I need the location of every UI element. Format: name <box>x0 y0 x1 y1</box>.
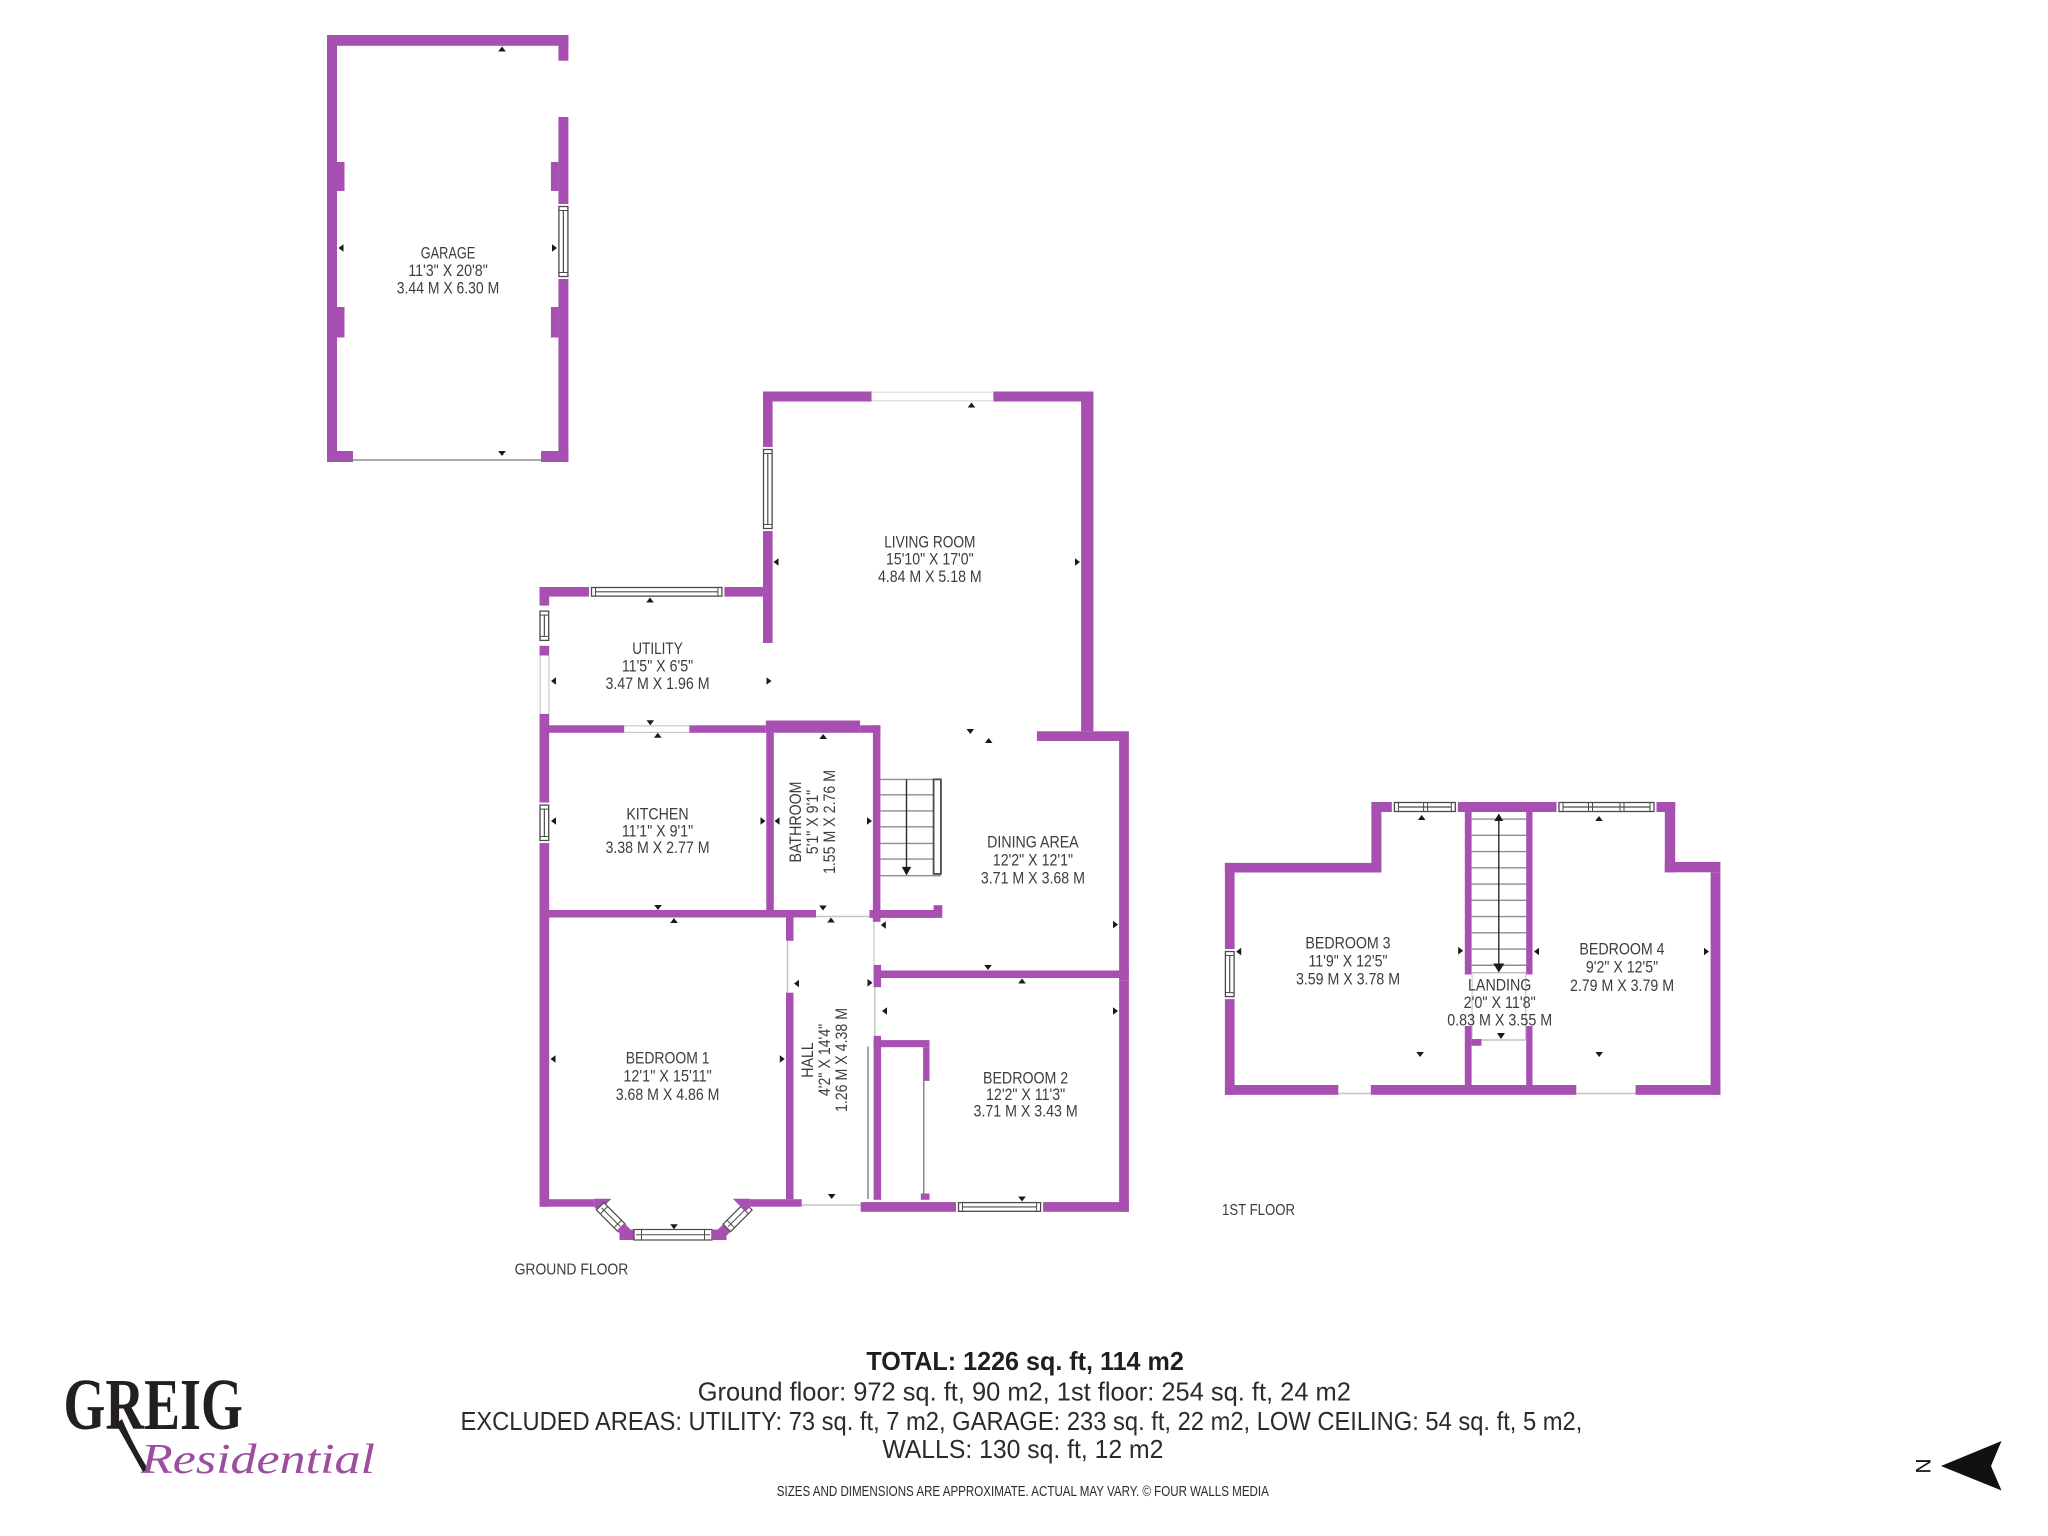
svg-text:11'1" X 9'1": 11'1" X 9'1" <box>622 822 693 840</box>
svg-text:EXCLUDED AREAS: UTILITY: 73 sq: EXCLUDED AREAS: UTILITY: 73 sq. ft, 7 m2… <box>461 1408 1583 1436</box>
svg-text:N: N <box>1913 1458 1936 1473</box>
svg-text:3.59 M X 3.78 M: 3.59 M X 3.78 M <box>1296 971 1400 989</box>
svg-text:SIZES AND DIMENSIONS ARE APPRO: SIZES AND DIMENSIONS ARE APPROXIMATE. AC… <box>777 1483 1270 1500</box>
svg-text:5'1" X 9'1": 5'1" X 9'1" <box>804 790 822 855</box>
svg-text:LIVING ROOM: LIVING ROOM <box>884 533 975 551</box>
svg-text:3.47 M X 1.96 M: 3.47 M X 1.96 M <box>605 675 709 693</box>
svg-text:1.26 M X 4.38 M: 1.26 M X 4.38 M <box>833 1008 851 1112</box>
svg-text:GREIG: GREIG <box>64 1364 243 1445</box>
svg-text:3.44 M X 6.30 M: 3.44 M X 6.30 M <box>397 279 499 297</box>
svg-text:GROUND FLOOR: GROUND FLOOR <box>515 1262 629 1279</box>
svg-text:BATHROOM: BATHROOM <box>787 782 805 863</box>
svg-text:3.68 M X 4.86 M: 3.68 M X 4.86 M <box>616 1086 720 1104</box>
svg-text:1ST FLOOR: 1ST FLOOR <box>1222 1202 1295 1219</box>
svg-text:9'2" X 12'5": 9'2" X 12'5" <box>1586 959 1658 977</box>
svg-text:15'10" X 17'0": 15'10" X 17'0" <box>886 551 974 569</box>
svg-text:4'2" X 14'4": 4'2" X 14'4" <box>816 1024 834 1096</box>
svg-text:BEDROOM 4: BEDROOM 4 <box>1579 940 1664 958</box>
svg-text:3.71 M X 3.43 M: 3.71 M X 3.43 M <box>974 1102 1078 1120</box>
svg-text:12'2" X 12'1": 12'2" X 12'1" <box>993 851 1073 869</box>
svg-text:1.55 M X 2.76 M: 1.55 M X 2.76 M <box>821 770 839 874</box>
svg-text:UTILITY: UTILITY <box>632 640 683 658</box>
svg-text:3.38 M X 2.77 M: 3.38 M X 2.77 M <box>605 839 709 857</box>
svg-text:3.71 M X 3.68 M: 3.71 M X 3.68 M <box>981 870 1085 888</box>
svg-text:LANDING: LANDING <box>1468 977 1531 995</box>
svg-text:KITCHEN: KITCHEN <box>626 805 688 823</box>
svg-text:BEDROOM 1: BEDROOM 1 <box>626 1050 710 1068</box>
svg-text:12'1" X 15'11": 12'1" X 15'11" <box>623 1068 712 1086</box>
svg-text:2'0" X 11'8": 2'0" X 11'8" <box>1464 994 1536 1012</box>
svg-text:BEDROOM 2: BEDROOM 2 <box>983 1069 1068 1087</box>
svg-text:DINING AREA: DINING AREA <box>987 833 1079 851</box>
svg-text:2.79 M X 3.79 M: 2.79 M X 3.79 M <box>1570 977 1674 995</box>
svg-text:BEDROOM 3: BEDROOM 3 <box>1305 935 1390 953</box>
svg-text:WALLS: 130 sq. ft, 12 m2: WALLS: 130 sq. ft, 12 m2 <box>882 1436 1163 1464</box>
svg-text:Ground floor: 972 sq. ft, 90 m: Ground floor: 972 sq. ft, 90 m2, 1st flo… <box>698 1379 1351 1407</box>
svg-text:11'3" X 20'8": 11'3" X 20'8" <box>408 262 488 280</box>
svg-text:4.84 M X 5.18 M: 4.84 M X 5.18 M <box>878 568 982 586</box>
svg-text:0.83 M X 3.55 M: 0.83 M X 3.55 M <box>1447 1012 1552 1030</box>
svg-text:HALL: HALL <box>799 1042 817 1078</box>
svg-text:TOTAL: 1226 sq. ft, 114 m2: TOTAL: 1226 sq. ft, 114 m2 <box>866 1348 1184 1376</box>
svg-text:11'9" X 12'5": 11'9" X 12'5" <box>1308 953 1387 971</box>
svg-text:11'5" X 6'5": 11'5" X 6'5" <box>622 658 693 676</box>
svg-text:Residential: Residential <box>140 1437 375 1483</box>
svg-text:12'2" X 11'3": 12'2" X 11'3" <box>986 1086 1065 1104</box>
svg-text:GARAGE: GARAGE <box>421 245 476 263</box>
